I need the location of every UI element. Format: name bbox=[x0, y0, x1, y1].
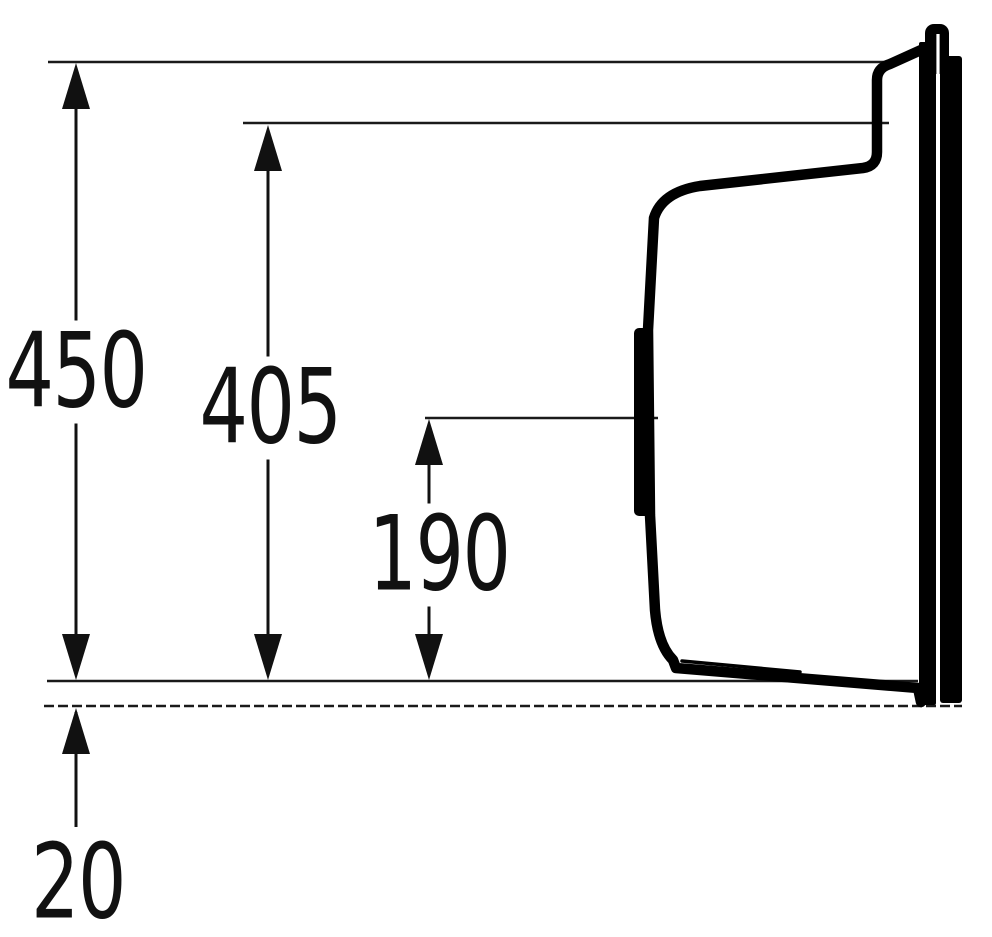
dim-label-20: 20 bbox=[24, 832, 133, 935]
dim-label-190: 190 bbox=[361, 504, 517, 607]
dim-450-arrow-top bbox=[62, 63, 90, 109]
dim-20-arrow-up bbox=[62, 708, 90, 754]
technical-drawing-canvas: 450 405 190 20 bbox=[0, 0, 992, 937]
dim-405-arrow-top bbox=[254, 125, 282, 171]
dim-190-arrow-top bbox=[415, 419, 443, 465]
basin-profile-outline bbox=[648, 50, 921, 702]
dim-label-405: 405 bbox=[192, 357, 348, 460]
wall-seam bbox=[936, 34, 939, 700]
dim-label-450: 450 bbox=[0, 321, 154, 424]
dim-190-arrow-bottom bbox=[415, 634, 443, 680]
dim-405-arrow-bottom bbox=[254, 634, 282, 680]
fixture-back-edge bbox=[919, 42, 936, 705]
wall-band bbox=[940, 56, 962, 703]
dimension-drawing bbox=[0, 0, 992, 937]
wall-section bbox=[919, 24, 962, 705]
front-bracket-bar bbox=[634, 328, 651, 516]
dim-450-arrow-bottom bbox=[62, 634, 90, 680]
